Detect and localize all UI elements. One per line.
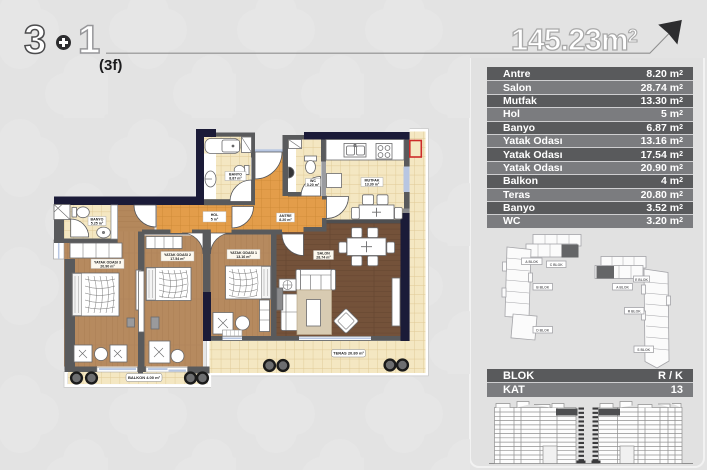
svg-text:D BLOK: D BLOK	[536, 329, 550, 333]
svg-text:5.25 m²: 5.25 m²	[91, 222, 104, 226]
svg-text:E BLOK: E BLOK	[635, 278, 648, 282]
svg-text:BALKON 4.00 m²: BALKON 4.00 m²	[128, 375, 161, 380]
svg-text:HOL: HOL	[211, 213, 219, 217]
svg-text:13.16 m²: 13.16 m²	[236, 255, 251, 259]
svg-text:TERAS 20.80 m²: TERAS 20.80 m²	[333, 351, 364, 356]
svg-text:A BLOK: A BLOK	[525, 260, 538, 264]
svg-text:13.30 m²: 13.30 m²	[365, 183, 380, 187]
svg-text:28.74 m²: 28.74 m²	[316, 256, 331, 260]
svg-text:3.20 m²: 3.20 m²	[307, 183, 320, 187]
svg-text:17.54 m²: 17.54 m²	[170, 257, 185, 261]
svg-text:A BLOK: A BLOK	[616, 286, 629, 290]
svg-text:R BLOK: R BLOK	[628, 310, 642, 314]
svg-text:S BLOK: S BLOK	[637, 348, 650, 352]
svg-text:5 m²: 5 m²	[211, 218, 219, 222]
svg-text:20.90 m²: 20.90 m²	[100, 265, 115, 269]
svg-text:8.87 m²: 8.87 m²	[229, 177, 242, 181]
svg-text:C BLOK: C BLOK	[550, 263, 564, 267]
svg-text:B BLOK: B BLOK	[536, 286, 550, 290]
svg-text:8.20 m²: 8.20 m²	[279, 218, 292, 222]
